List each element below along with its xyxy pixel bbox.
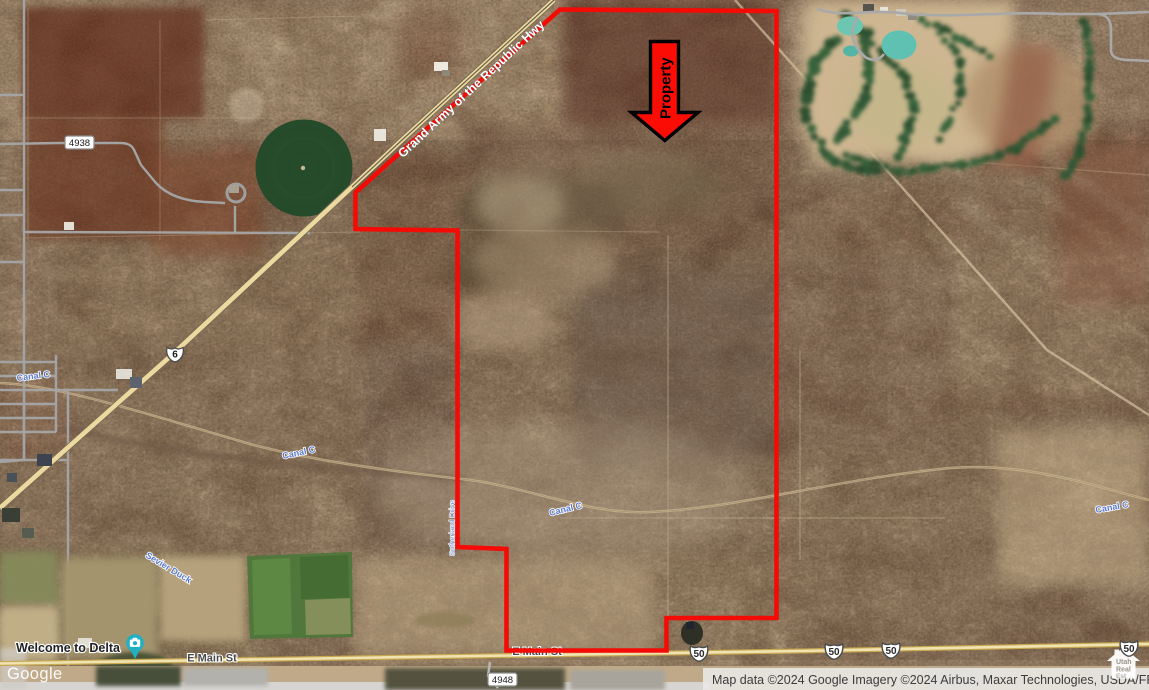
svg-text:4948: 4948 [492, 675, 513, 686]
svg-text:50: 50 [885, 646, 897, 657]
svg-text:Sutherland Drive: Sutherland Drive [448, 500, 457, 556]
svg-text:Map data ©2024 Google Imagery: Map data ©2024 Google Imagery ©2024 Airb… [712, 673, 1149, 687]
svg-text:Google: Google [7, 665, 63, 683]
svg-text:Est: Est [1116, 673, 1127, 680]
svg-text:Welcome to Delta: Welcome to Delta [16, 641, 121, 655]
svg-text:4938: 4938 [69, 138, 90, 149]
svg-text:50: 50 [1123, 644, 1135, 655]
svg-text:Utah: Utah [1116, 659, 1132, 666]
svg-text:50: 50 [828, 647, 840, 658]
svg-text:E Main St: E Main St [187, 653, 237, 665]
svg-text:6: 6 [172, 350, 178, 361]
svg-text:50: 50 [693, 649, 705, 660]
svg-text:Property: Property [658, 57, 675, 119]
